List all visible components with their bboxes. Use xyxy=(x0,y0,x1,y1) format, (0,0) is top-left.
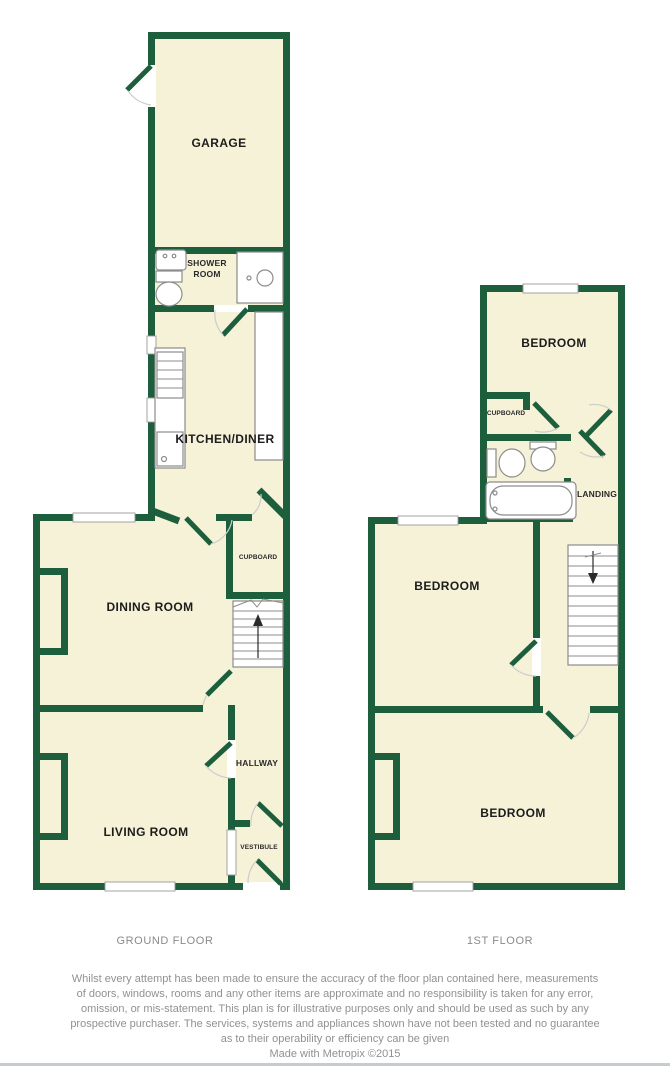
ground-floor-caption: GROUND FLOOR xyxy=(116,935,213,947)
first-floor-plan: BEDROOM CUPBOARD LANDING BEDROOM BEDROOM… xyxy=(368,284,625,947)
disclaimer-line: of doors, windows, rooms and any other i… xyxy=(0,987,670,1002)
floorplan-page: GARAGE SHOWER ROOM KITCHEN/DINER CUPBOAR… xyxy=(0,0,670,1072)
toilet-icon xyxy=(487,449,496,477)
bottom-divider xyxy=(0,1063,670,1066)
disclaimer-line: as to their operability or efficiency ca… xyxy=(0,1032,670,1047)
room-label-kitchen-diner: KITCHEN/DINER xyxy=(175,432,274,446)
room-label-landing: LANDING xyxy=(577,489,617,499)
toilet-icon xyxy=(156,271,182,282)
room-label-hallway: HALLWAY xyxy=(236,758,278,768)
room-label-bedroom-middle: BEDROOM xyxy=(414,579,479,593)
vestibule-window-icon xyxy=(227,830,236,875)
disclaimer-block: Whilst every attempt has been made to en… xyxy=(0,972,670,1062)
first-floor-stairs-icon xyxy=(568,545,618,665)
ground-floor-stairs-icon xyxy=(233,599,283,667)
disclaimer-line: prospective purchaser. The services, sys… xyxy=(0,1017,670,1032)
metropix-credit: Made with Metropix ©2015 xyxy=(0,1047,670,1062)
basin-icon xyxy=(156,250,186,270)
shower-icon xyxy=(237,252,283,303)
bedroom-bottom-window-icon xyxy=(413,882,473,891)
first-floor-caption: 1ST FLOOR xyxy=(467,935,533,947)
bedroom-top-window-icon xyxy=(523,284,578,293)
room-label-dining-room: DINING ROOM xyxy=(106,600,193,614)
dining-window-icon xyxy=(73,513,135,522)
kitchen-counter2-icon xyxy=(155,348,185,468)
room-label-cupboard-gf: CUPBOARD xyxy=(239,554,278,561)
room-label-vestibule: VESTIBULE xyxy=(240,844,278,851)
room-label-bedroom-top: BEDROOM xyxy=(521,336,586,350)
living-window-icon xyxy=(105,882,175,891)
room-label-shower-room-2: ROOM xyxy=(193,269,220,279)
ground-floor-plan: GARAGE SHOWER ROOM KITCHEN/DINER CUPBOAR… xyxy=(33,32,290,947)
floor-plan-drawing: GARAGE SHOWER ROOM KITCHEN/DINER CUPBOAR… xyxy=(0,0,670,960)
bath-icon xyxy=(486,482,576,519)
disclaimer-line: omission, or mis-statement. This plan is… xyxy=(0,1002,670,1017)
room-label-garage: GARAGE xyxy=(191,136,246,150)
room-label-living-room: LIVING ROOM xyxy=(103,825,188,839)
disclaimer-line: Whilst every attempt has been made to en… xyxy=(0,972,670,987)
room-label-cupboard-ff: CUPBOARD xyxy=(487,410,526,417)
bedroom-middle-window-icon xyxy=(398,516,458,525)
room-label-shower-room-1: SHOWER xyxy=(187,258,226,268)
room-label-bedroom-bottom: BEDROOM xyxy=(480,806,545,820)
